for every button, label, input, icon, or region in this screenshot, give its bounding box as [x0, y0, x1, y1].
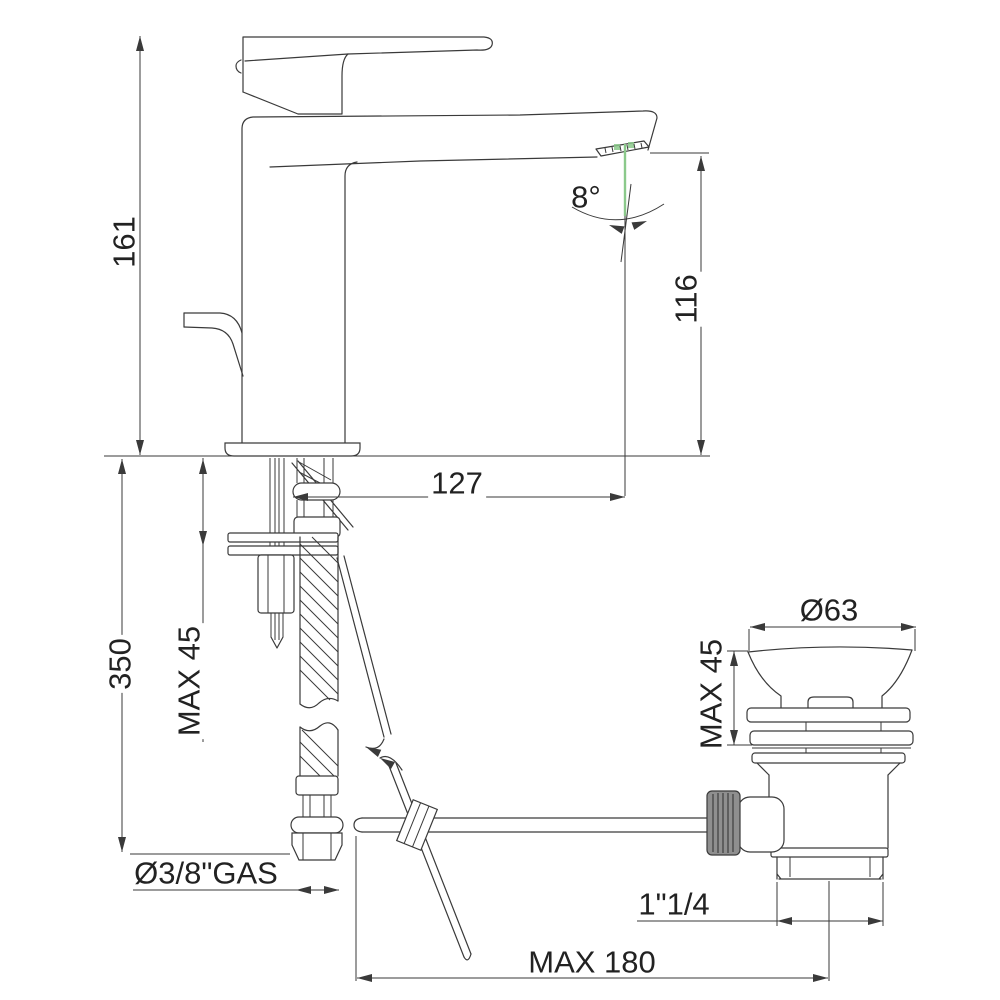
horseshoe-washer	[228, 533, 338, 542]
rod-coupling-cap	[738, 797, 784, 852]
dim-deck-thickness-max: MAX 45	[174, 623, 205, 739]
hose-hex-nut	[292, 833, 342, 860]
dim-waste-depth-max: MAX 45	[696, 636, 727, 752]
label-inlet-thread: Ø3/8"GAS	[131, 858, 281, 889]
aerator	[596, 141, 649, 156]
rod-clamp	[397, 800, 438, 851]
handle-lever	[236, 37, 492, 114]
handle-hook	[184, 313, 243, 376]
supply-hose	[291, 537, 343, 860]
label-spray-angle: 8°	[568, 182, 604, 213]
dim-waste-diameter: Ø63	[797, 595, 862, 626]
faucet-waste-diagram	[0, 0, 1000, 1000]
technical-drawing-canvas: 161 116 127 350 MAX 45 Ø3/8"GAS 8° Ø63 M…	[0, 0, 1000, 1000]
waste-assembly	[707, 647, 913, 879]
mounting-hardware	[228, 458, 340, 648]
dim-spout-reach: 127	[428, 468, 486, 499]
dim-spout-height: 116	[671, 271, 702, 326]
mounting-nut	[258, 555, 294, 613]
faucet-body	[225, 111, 657, 456]
label-waste-thread: 1"1/4	[635, 889, 712, 920]
dim-supply-length: 350	[105, 635, 136, 693]
dimension-lines	[104, 36, 916, 982]
dim-overall-height: 161	[109, 213, 140, 271]
dim-rod-length-max: MAX 180	[525, 947, 659, 978]
waste-flange-plate	[747, 708, 910, 722]
base-flange	[225, 443, 360, 456]
